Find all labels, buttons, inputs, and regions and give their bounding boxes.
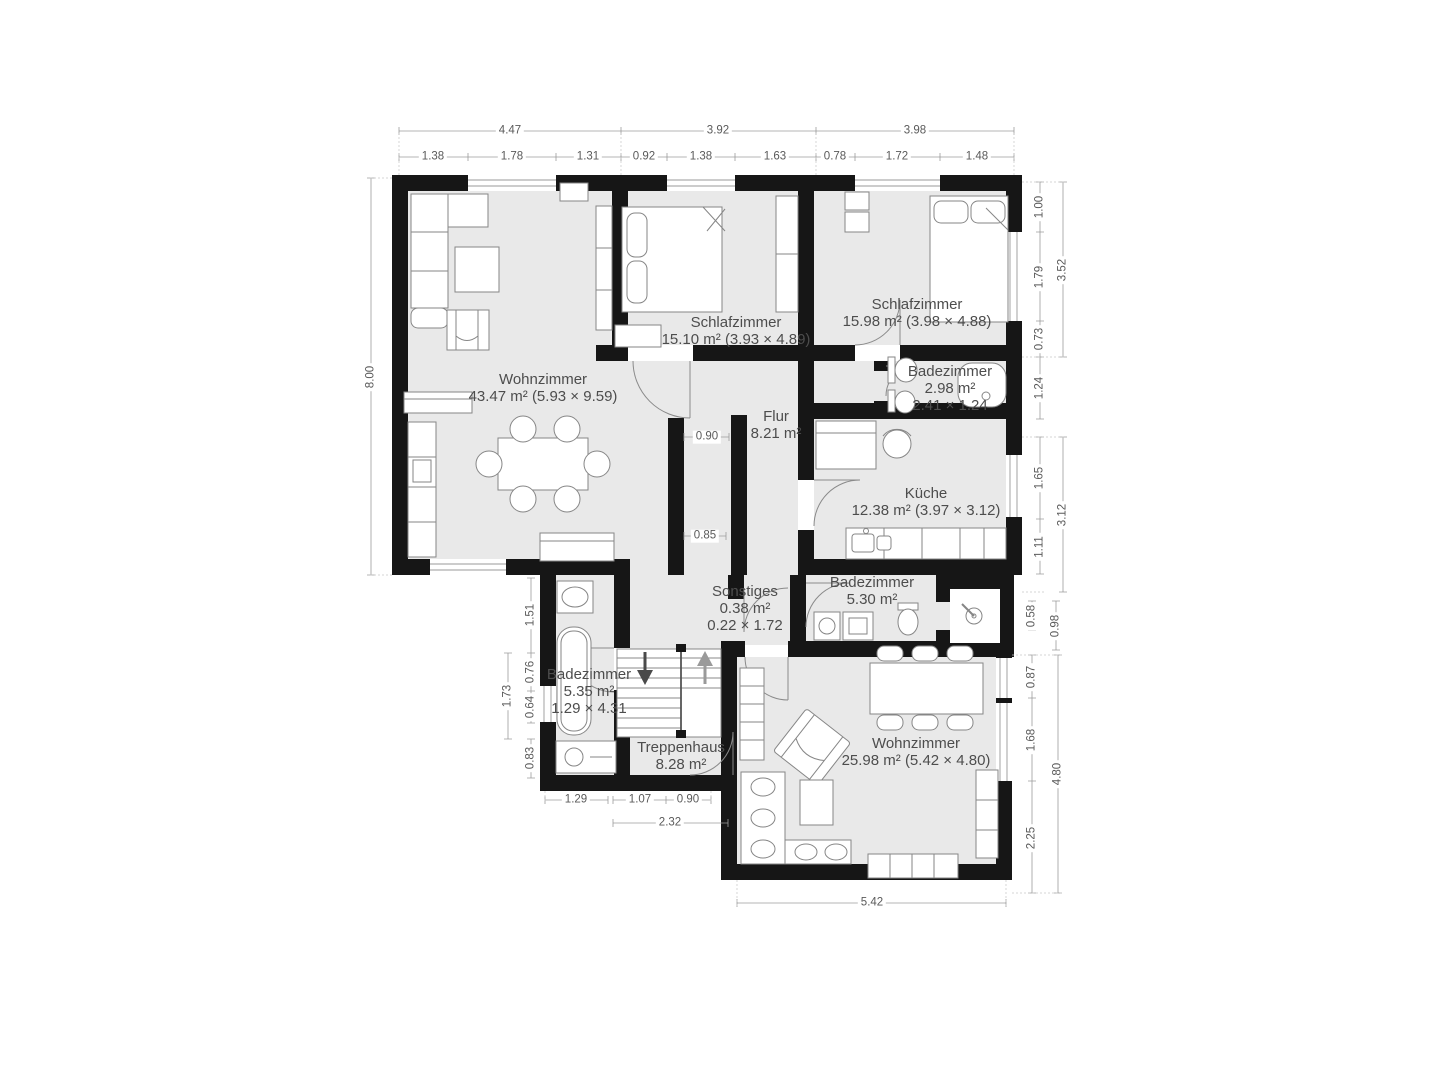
chair [912, 646, 938, 661]
cushion [751, 809, 775, 827]
dim-label: 0.90 [693, 431, 721, 444]
dim-label: 1.51 [525, 601, 538, 629]
room-label-badezimmer-2: Badezimmer 5.30 m² [830, 575, 914, 609]
pillow [627, 213, 647, 257]
kitchen-counter [846, 528, 1006, 559]
pillow [934, 201, 968, 223]
sink [852, 534, 874, 552]
tall-cabinet [596, 206, 612, 330]
cushion [751, 778, 775, 796]
dim-label: 3.52 [1057, 256, 1070, 284]
dim-label: 5.42 [858, 897, 886, 910]
room-name: Wohnzimmer [469, 372, 618, 389]
room-label-badezimmer-1: Badezimmer 2.98 m² 2.41 × 1.24 [908, 364, 992, 414]
room-size: 2.41 × 1.24 [908, 397, 992, 414]
bench [868, 854, 958, 878]
dim-label: 1.11 [1034, 533, 1047, 561]
appliance [843, 612, 873, 640]
chair [554, 486, 580, 512]
chair [510, 486, 536, 512]
room-area: 8.21 m² [751, 426, 802, 443]
washing-machine [556, 741, 616, 773]
dim-label: 3.92 [704, 125, 732, 138]
room-label-schlafzimmer-1: Schlafzimmer 15.10 m² (3.93 × 4.89) [662, 315, 811, 349]
chair [947, 646, 973, 661]
room-name: Badezimmer [908, 364, 992, 381]
chair [554, 416, 580, 442]
desk [816, 421, 876, 469]
dim-label: 1.73 [502, 682, 515, 710]
dim-label: 0.64 [525, 693, 538, 721]
room-name: Schlafzimmer [662, 315, 811, 332]
room-area: 15.10 m² (3.93 × 4.89) [662, 332, 811, 349]
dim-label: 0.83 [525, 744, 538, 772]
room-area: 12.38 m² (3.97 × 3.12) [852, 503, 1001, 520]
dim-label: 1.00 [1034, 193, 1047, 221]
dim-label: 1.31 [574, 151, 602, 164]
nightstand [845, 192, 869, 210]
room-name: Sonstiges [707, 584, 782, 601]
dim-label: 0.90 [674, 794, 702, 807]
room-label-badezimmer-3: Badezimmer 5.35 m² 1.29 × 4.31 [547, 667, 631, 717]
room-label-flur: Flur 8.21 m² [751, 409, 802, 443]
dim-label: 0.98 [1050, 612, 1063, 640]
dim-label: 1.79 [1034, 263, 1047, 291]
sideboard [976, 770, 998, 858]
nightstand [845, 212, 869, 232]
washing-machine [814, 612, 840, 640]
dim-label: 1.78 [498, 151, 526, 164]
cushion [751, 840, 775, 858]
room-label-treppenhaus: Treppenhaus 8.28 m² [637, 740, 725, 774]
chair [510, 416, 536, 442]
pillow [627, 261, 647, 303]
dim-label: 1.68 [1026, 726, 1039, 754]
dim-label: 1.63 [761, 151, 789, 164]
pillow [971, 201, 1005, 223]
room-area: 15.98 m² (3.98 × 4.88) [843, 314, 992, 331]
dim-label: 0.92 [630, 151, 658, 164]
dim-label: 1.24 [1034, 374, 1047, 402]
room-size: 0.22 × 1.72 [707, 617, 782, 634]
bed [622, 207, 725, 312]
chair [877, 646, 903, 661]
dim-label: 0.87 [1026, 663, 1039, 691]
cushion [825, 844, 847, 860]
dim-label: 1.48 [963, 151, 991, 164]
room-label-sonstiges: Sonstiges 0.38 m² 0.22 × 1.72 [707, 584, 782, 634]
dim-label: 1.38 [419, 151, 447, 164]
room-label-wohnzimmer-1: Wohnzimmer 43.47 m² (5.93 × 9.59) [469, 372, 618, 406]
room-name: Wohnzimmer [842, 736, 991, 753]
dim-label: 1.07 [626, 794, 654, 807]
dim-label: 0.58 [1026, 602, 1039, 630]
chair [476, 451, 502, 477]
bookshelf [740, 668, 764, 760]
chair [877, 715, 903, 730]
dim-label: 8.00 [365, 363, 378, 391]
room-name: Schlafzimmer [843, 297, 992, 314]
wardrobe [776, 196, 798, 312]
dim-label: 0.85 [691, 530, 719, 543]
bench [615, 325, 661, 347]
room-label-kueche: Küche 12.38 m² (3.97 × 3.12) [852, 486, 1001, 520]
dim-label: 0.76 [525, 658, 538, 686]
dim-label: 3.98 [901, 125, 929, 138]
room-area: 5.30 m² [830, 592, 914, 609]
dim-label: 3.12 [1057, 501, 1070, 529]
dim-label: 4.47 [496, 125, 524, 138]
armchair [447, 310, 489, 350]
sink [557, 581, 593, 613]
room-area: 8.28 m² [637, 757, 725, 774]
chair [584, 451, 610, 477]
room-name: Badezimmer [830, 575, 914, 592]
ottoman [800, 780, 833, 825]
room-size: 1.29 × 4.31 [547, 700, 631, 717]
room-name: Badezimmer [547, 667, 631, 684]
kitchen-counter-left [408, 422, 436, 557]
floor-plan: 4.47 3.92 3.98 1.38 1.78 1.31 0.92 1.38 … [0, 0, 1431, 1080]
dim-label: 4.80 [1052, 760, 1065, 788]
dim-label: 1.65 [1034, 464, 1047, 492]
coffee-table [455, 247, 499, 292]
cabinet [560, 183, 588, 201]
room-name: Treppenhaus [637, 740, 725, 757]
dim-label: 0.78 [821, 151, 849, 164]
chair [912, 715, 938, 730]
room-area: 25.98 m² (5.42 × 4.80) [842, 753, 991, 770]
room-area: 0.38 m² [707, 601, 782, 618]
counter [540, 533, 614, 561]
room-name: Küche [852, 486, 1001, 503]
room-label-schlafzimmer-2: Schlafzimmer 15.98 m² (3.98 × 4.88) [843, 297, 992, 331]
dining-table [870, 646, 983, 730]
dim-label: 0.73 [1034, 325, 1047, 353]
room-name: Flur [751, 409, 802, 426]
chair [947, 715, 973, 730]
dim-label: 1.38 [687, 151, 715, 164]
dim-label: 2.32 [656, 817, 684, 830]
sideboard [404, 392, 472, 413]
room-area: 43.47 m² (5.93 × 9.59) [469, 389, 618, 406]
room-area: 2.98 m² [908, 381, 992, 398]
room-label-wohnzimmer-2: Wohnzimmer 25.98 m² (5.42 × 4.80) [842, 736, 991, 770]
chair [883, 429, 911, 458]
dim-label: 1.29 [562, 794, 590, 807]
staircase [617, 644, 721, 738]
dim-label: 2.25 [1026, 824, 1039, 852]
dim-label: 1.72 [883, 151, 911, 164]
sink [877, 536, 891, 550]
room-area: 5.35 m² [547, 684, 631, 701]
cushion [795, 844, 817, 860]
